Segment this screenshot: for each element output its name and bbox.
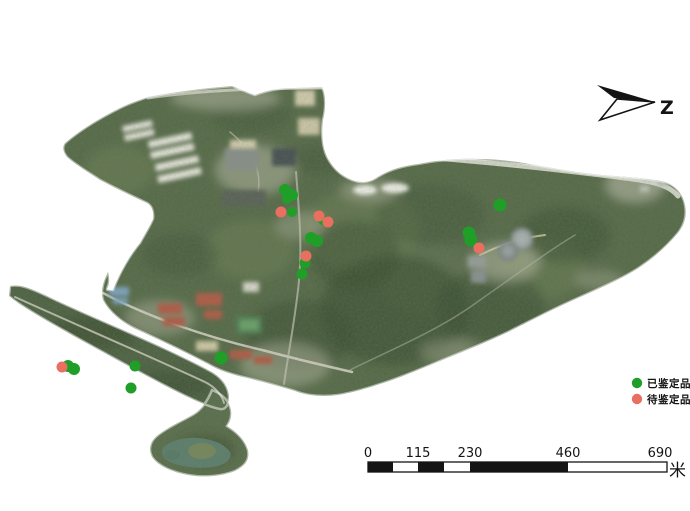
scale-tick-230: 230 <box>458 446 483 461</box>
satellite-texture <box>0 60 690 490</box>
pending-point <box>314 211 325 222</box>
legend: 已鉴定品种 待鉴定品种 <box>632 377 690 406</box>
north-arrow-label: Z <box>660 97 674 119</box>
identified-point <box>297 269 308 280</box>
scale-unit-label: 米 <box>669 461 686 481</box>
scale-tick-0: 0 <box>364 446 372 461</box>
pending-point <box>301 251 312 262</box>
pending-point <box>323 217 334 228</box>
map-figure: Z 0 115 230 460 690 米 已鉴定品种 待鉴定品种 <box>0 0 690 511</box>
north-arrow: Z <box>597 85 674 120</box>
scale-bar-segment <box>470 462 568 472</box>
scale-bar-segment <box>418 462 444 472</box>
pending-point <box>276 207 287 218</box>
identified-point <box>494 199 507 212</box>
legend-pending-swatch <box>632 394 642 404</box>
map-canvas: Z 0 115 230 460 690 米 已鉴定品种 待鉴定品种 <box>0 0 690 511</box>
park-landmass <box>0 60 690 490</box>
identified-point <box>215 352 228 365</box>
identified-point <box>68 363 80 375</box>
identified-point <box>130 361 141 372</box>
north-arrow-lower-wing <box>600 99 655 120</box>
legend-pending-label: 待鉴定品种 <box>647 393 690 406</box>
pending-point <box>474 243 485 254</box>
legend-identified-swatch <box>632 378 642 388</box>
scale-bar-segment <box>368 462 393 472</box>
identified-point <box>126 383 137 394</box>
scale-tick-690: 690 <box>648 446 673 461</box>
identified-point <box>282 194 292 204</box>
identified-point <box>311 235 323 247</box>
pending-point <box>57 362 68 373</box>
scale-tick-460: 460 <box>556 446 581 461</box>
scale-bar: 0 115 230 460 690 米 <box>364 446 686 481</box>
scale-tick-115: 115 <box>406 446 431 461</box>
identified-point <box>287 207 297 217</box>
legend-identified-label: 已鉴定品种 <box>647 377 690 390</box>
